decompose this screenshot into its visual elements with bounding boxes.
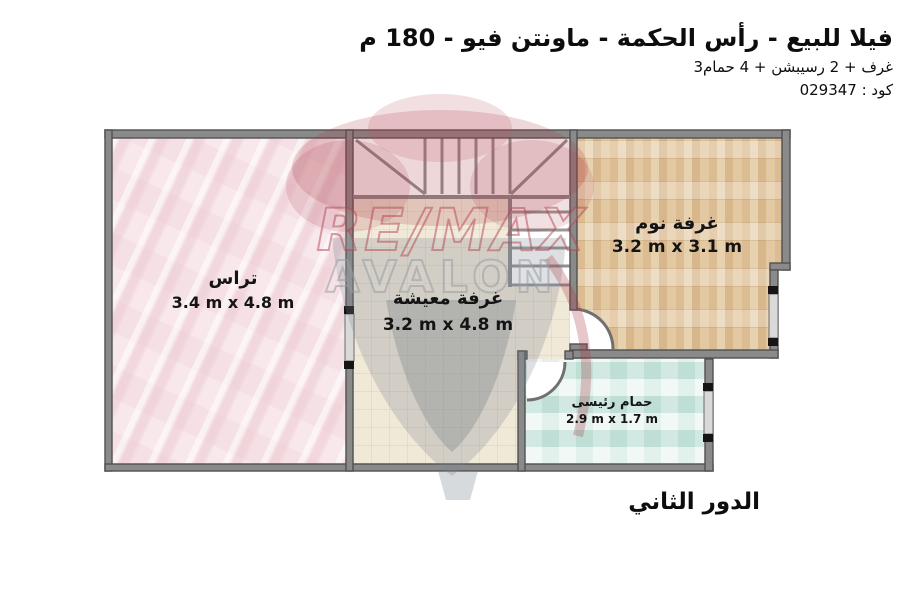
wall-bathroom-top-right xyxy=(565,351,573,359)
bathroom-dimensions: 2.9 m x 1.7 m xyxy=(532,412,692,426)
bathroom-name: حمام رئيسى xyxy=(532,395,692,410)
living-room-dimensions: 3.2 m x 4.8 m xyxy=(358,315,538,335)
bathroom-label: حمام رئيسى 2.9 m x 1.7 m xyxy=(532,395,692,426)
living-room-label: غرفة معيشة 3.2 m x 4.8 m xyxy=(358,288,538,335)
bathroom-window xyxy=(703,383,713,442)
wall-notch-step xyxy=(770,263,790,270)
wall-outer-right-upper xyxy=(782,130,790,270)
bedroom-dimensions: 3.2 m x 3.1 m xyxy=(587,237,767,257)
wall-outer-bottom xyxy=(105,464,713,471)
terrace-label: تراس 3.4 m x 4.8 m xyxy=(143,268,323,312)
bedroom-name: غرفة نوم xyxy=(587,213,767,234)
bedroom-label: غرفة نوم 3.2 m x 3.1 m xyxy=(587,213,767,257)
floorplan-page: { "header": { "title": "فيلا للبيع - رأس… xyxy=(0,0,900,600)
terrace-name: تراس xyxy=(143,268,323,289)
floor-title: الدور الثاني xyxy=(628,489,760,515)
wall-bedroom-bottom xyxy=(570,350,778,358)
terrace-dimensions: 3.4 m x 4.8 m xyxy=(143,293,323,312)
bedroom-window xyxy=(768,286,778,346)
wall-outer-left xyxy=(105,130,112,471)
living-room-name: غرفة معيشة xyxy=(358,288,538,309)
